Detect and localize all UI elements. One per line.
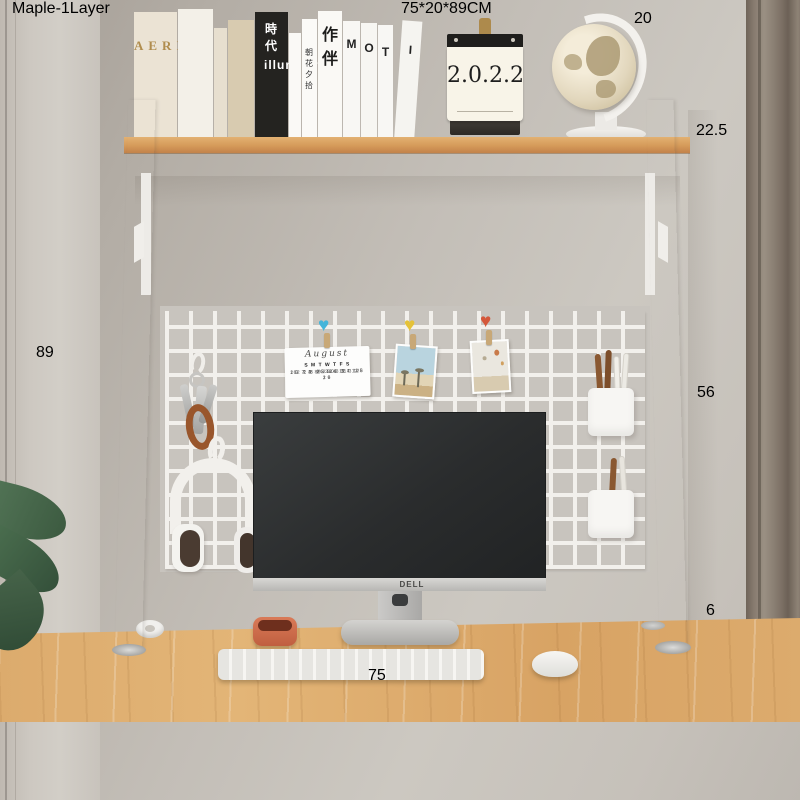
dimension-cap [684, 657, 687, 676]
book-spine [228, 20, 254, 141]
dimension-label-width: 75 [368, 667, 386, 685]
book-title: 作伴 [322, 21, 342, 69]
dimension-cap [683, 651, 702, 654]
pen-cup [588, 490, 634, 538]
monitor-screen [253, 412, 546, 582]
curtain-fold [758, 0, 761, 660]
desk-calendar-year: 2.0.2.2 [447, 63, 523, 88]
dimension-label-middle: 56 [697, 384, 715, 402]
variant-label: Maple-1Layer [12, 0, 399, 18]
pen-cup [588, 388, 634, 436]
book-spine [214, 28, 227, 141]
dimension-line-middle [691, 244, 694, 582]
mouse [532, 651, 578, 677]
mini-calendar-card: August S M T W T F S 1 2 3 4 5 6 7 8 9 1… [284, 346, 370, 398]
dimension-cap [91, 650, 110, 653]
desk-front-edge [0, 698, 800, 722]
dimension-line-foot [691, 597, 694, 653]
dimension-cap [683, 242, 702, 245]
book-spine-zhaohua: 朝花夕拾 [302, 19, 317, 141]
dimension-label-foot: 6 [706, 602, 715, 620]
dimension-cap [683, 226, 702, 229]
dimension-cap [683, 80, 702, 83]
calendar-screw [511, 38, 515, 42]
cable-hole [392, 594, 408, 606]
globe-sphere [552, 24, 636, 110]
heart-clip-red-icon: ♥ [480, 312, 491, 331]
product-photo-scene: August S M T W T F S 1 2 3 4 5 6 7 8 9 1… [0, 0, 800, 800]
middle-rail [138, 293, 674, 313]
calendar-screw [454, 38, 458, 42]
book-spine-m: M [343, 21, 360, 141]
adjustable-foot [112, 644, 146, 656]
heart-clip-yellow-icon: ♥ [404, 316, 415, 335]
adjustable-foot-rear [641, 621, 665, 630]
dimension-line-upper [691, 82, 694, 227]
dimension-line-total-height [99, 60, 102, 652]
shelf-front-rail [124, 153, 690, 173]
shelf-shadow [135, 176, 680, 206]
curtain [746, 0, 800, 660]
photo-card-palms [392, 344, 438, 400]
desk-tray-opening [258, 620, 292, 631]
dimension-cap [683, 580, 702, 583]
dimension-cap [683, 595, 702, 598]
size-label: 75*20*89CM [401, 0, 788, 18]
calendar-footnote-line [457, 111, 513, 112]
dimension-cap [91, 58, 110, 61]
heart-clip-blue-icon: ♥ [318, 316, 329, 335]
clothespin [486, 330, 492, 345]
tape-roll-hole [145, 625, 155, 632]
book-title: 朝花夕拾 [305, 47, 317, 91]
dimension-line-width [114, 665, 686, 668]
headphones-band [170, 458, 256, 534]
photo-card-balloons [470, 339, 512, 394]
shelf-wood-board [124, 137, 690, 153]
monitor-bezel: DELL [253, 578, 546, 591]
mini-calendar-month: August [284, 348, 369, 360]
book-spine-o: O [361, 23, 377, 141]
dimension-cap [112, 657, 115, 676]
dimension-label-total-height: 89 [36, 344, 54, 362]
book-spine [289, 33, 301, 141]
book-spine-t: T [378, 25, 393, 141]
monitor-brand-logo: DELL [400, 578, 425, 591]
book-spine-black: 時代 illuminate [255, 12, 288, 141]
book-title-cjk: 時代 [265, 20, 288, 54]
clothespin [410, 334, 416, 349]
book-spine [178, 9, 213, 141]
monitor-stand-base [341, 620, 459, 645]
desk-calendar-page: 2.0.2.2 [447, 47, 523, 121]
earcup-pad [180, 530, 200, 567]
book-spine-zuoban: 作伴 [318, 11, 342, 141]
dimension-label-upper: 22.5 [696, 122, 727, 140]
